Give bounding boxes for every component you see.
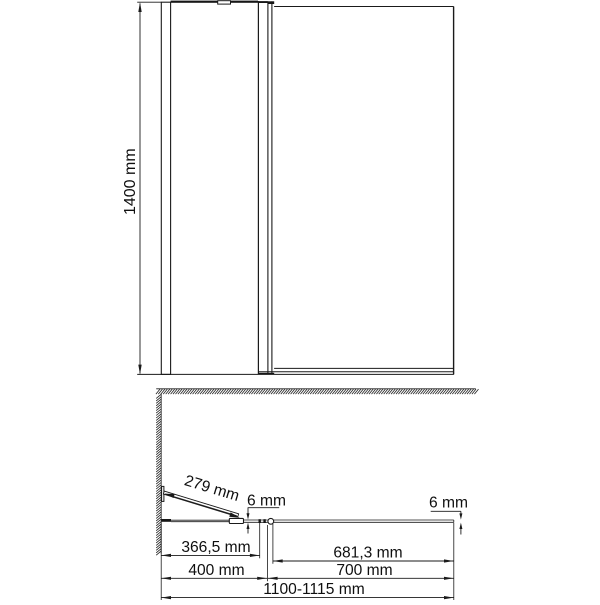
svg-text:700 mm: 700 mm — [336, 562, 392, 579]
svg-text:6 mm: 6 mm — [429, 495, 468, 512]
svg-text:366,5 mm: 366,5 mm — [181, 539, 250, 556]
svg-text:400 mm: 400 mm — [188, 562, 244, 579]
svg-text:681,3 mm: 681,3 mm — [333, 545, 402, 562]
svg-text:1400 mm: 1400 mm — [122, 148, 139, 215]
svg-text:1100-1115 mm: 1100-1115 mm — [263, 581, 364, 598]
svg-text:6 mm: 6 mm — [247, 493, 286, 510]
